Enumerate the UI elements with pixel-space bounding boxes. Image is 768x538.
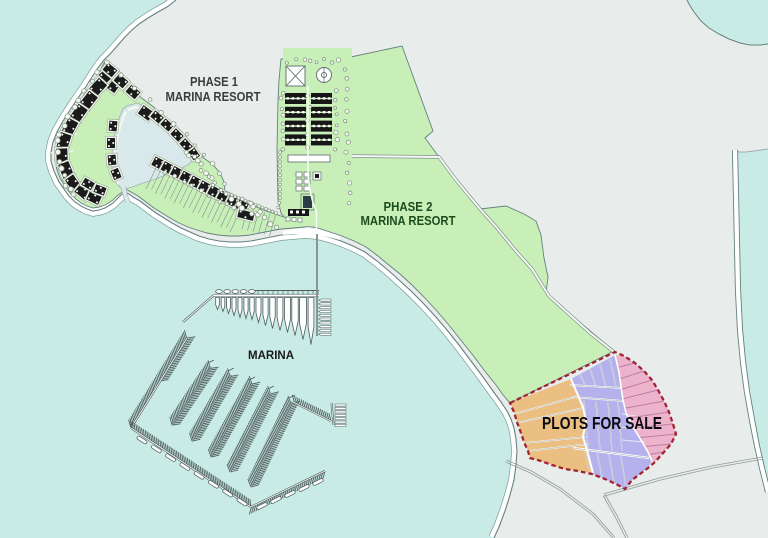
svg-text:MARINA RESORT: MARINA RESORT xyxy=(166,90,261,104)
svg-text:MARINA RESORT: MARINA RESORT xyxy=(361,214,456,228)
svg-text:PHASE 2: PHASE 2 xyxy=(384,200,433,214)
svg-text:PHASE 1: PHASE 1 xyxy=(190,75,238,89)
svg-text:MARINA: MARINA xyxy=(248,348,294,362)
svg-text:PLOTS FOR SALE: PLOTS FOR SALE xyxy=(542,413,662,433)
